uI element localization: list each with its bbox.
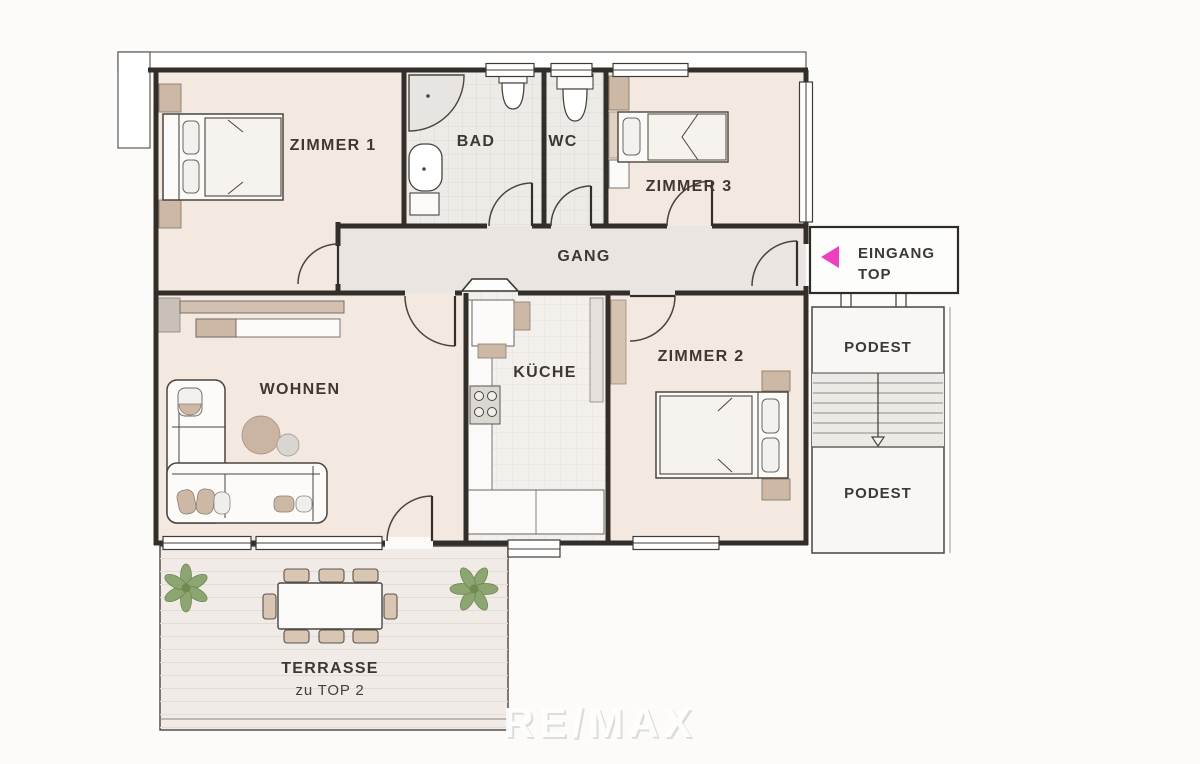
room-label-terrasse: TERRASSE <box>281 660 379 677</box>
sofa-pillow <box>214 492 230 514</box>
kitchen-cabinet <box>472 300 514 346</box>
nightstand <box>762 371 790 391</box>
entrance-label-line1: EINGANG <box>858 245 935 262</box>
room-label-zimmer2: ZIMMER 2 <box>658 348 745 365</box>
room-label-kueche: KÜCHE <box>513 362 576 381</box>
kitchen-appliance <box>478 344 506 358</box>
double-bed-icon <box>163 114 283 200</box>
cooktop-icon <box>470 386 500 424</box>
room-label-wc: WC <box>548 133 577 150</box>
nightstand <box>159 200 181 228</box>
shelf <box>609 160 629 188</box>
room-label-zimmer1: ZIMMER 1 <box>290 137 377 154</box>
sink-icon <box>409 144 442 191</box>
double-bed-icon <box>656 392 788 478</box>
landing-connectors <box>841 293 906 307</box>
watermark-text: RE/MAX <box>503 699 696 746</box>
door-gaps <box>385 537 433 549</box>
window <box>486 64 534 77</box>
tall-cabinet <box>590 298 603 402</box>
lowboard <box>196 319 340 337</box>
window <box>508 540 560 557</box>
window <box>256 537 382 550</box>
window <box>633 537 719 550</box>
room-label-podest-lower: PODEST <box>844 485 912 502</box>
window <box>163 537 251 550</box>
terrace <box>160 546 508 730</box>
watermark: RE/MAX RE/MAX <box>503 699 698 748</box>
entrance-label-line2: TOP <box>858 266 892 283</box>
window <box>800 82 813 222</box>
room-label-terrasse-sub: zu TOP 2 <box>296 682 365 699</box>
room-label-wohnen: WOHNEN <box>260 381 341 398</box>
window <box>551 64 592 77</box>
room-label-zimmer3: ZIMMER 3 <box>646 178 733 195</box>
sofa-pillow <box>296 496 312 512</box>
sideboard <box>180 301 344 313</box>
room-label-podest-upper: PODEST <box>844 339 912 356</box>
corner-cabinet <box>158 298 180 332</box>
nightstand <box>762 479 790 500</box>
room-zimmer1-floor-lower <box>157 224 338 291</box>
wardrobe <box>611 300 626 384</box>
sofa-pillow <box>274 496 294 512</box>
room-label-gang: GANG <box>557 248 610 265</box>
nightstand <box>159 84 181 112</box>
floorplan-drawing: EINGANG TOP ZIMMER 1 BAD WC ZIMMER 3 GAN… <box>0 0 1200 764</box>
washer-icon <box>410 193 439 215</box>
entrance-callout: EINGANG TOP <box>810 227 958 293</box>
room-label-bad: BAD <box>457 133 496 150</box>
wardrobe <box>609 76 629 110</box>
coffee-table-icon <box>242 416 280 454</box>
kitchen-appliance <box>514 302 530 330</box>
single-bed-icon <box>618 112 728 162</box>
kitchen-lower-cabinets <box>468 490 604 534</box>
kitchen-passage-niche <box>462 279 518 291</box>
floorplan-page: EINGANG TOP ZIMMER 1 BAD WC ZIMMER 3 GAN… <box>0 0 1200 764</box>
window <box>613 64 688 77</box>
side-table-icon <box>277 434 299 456</box>
stairwell <box>812 293 950 553</box>
